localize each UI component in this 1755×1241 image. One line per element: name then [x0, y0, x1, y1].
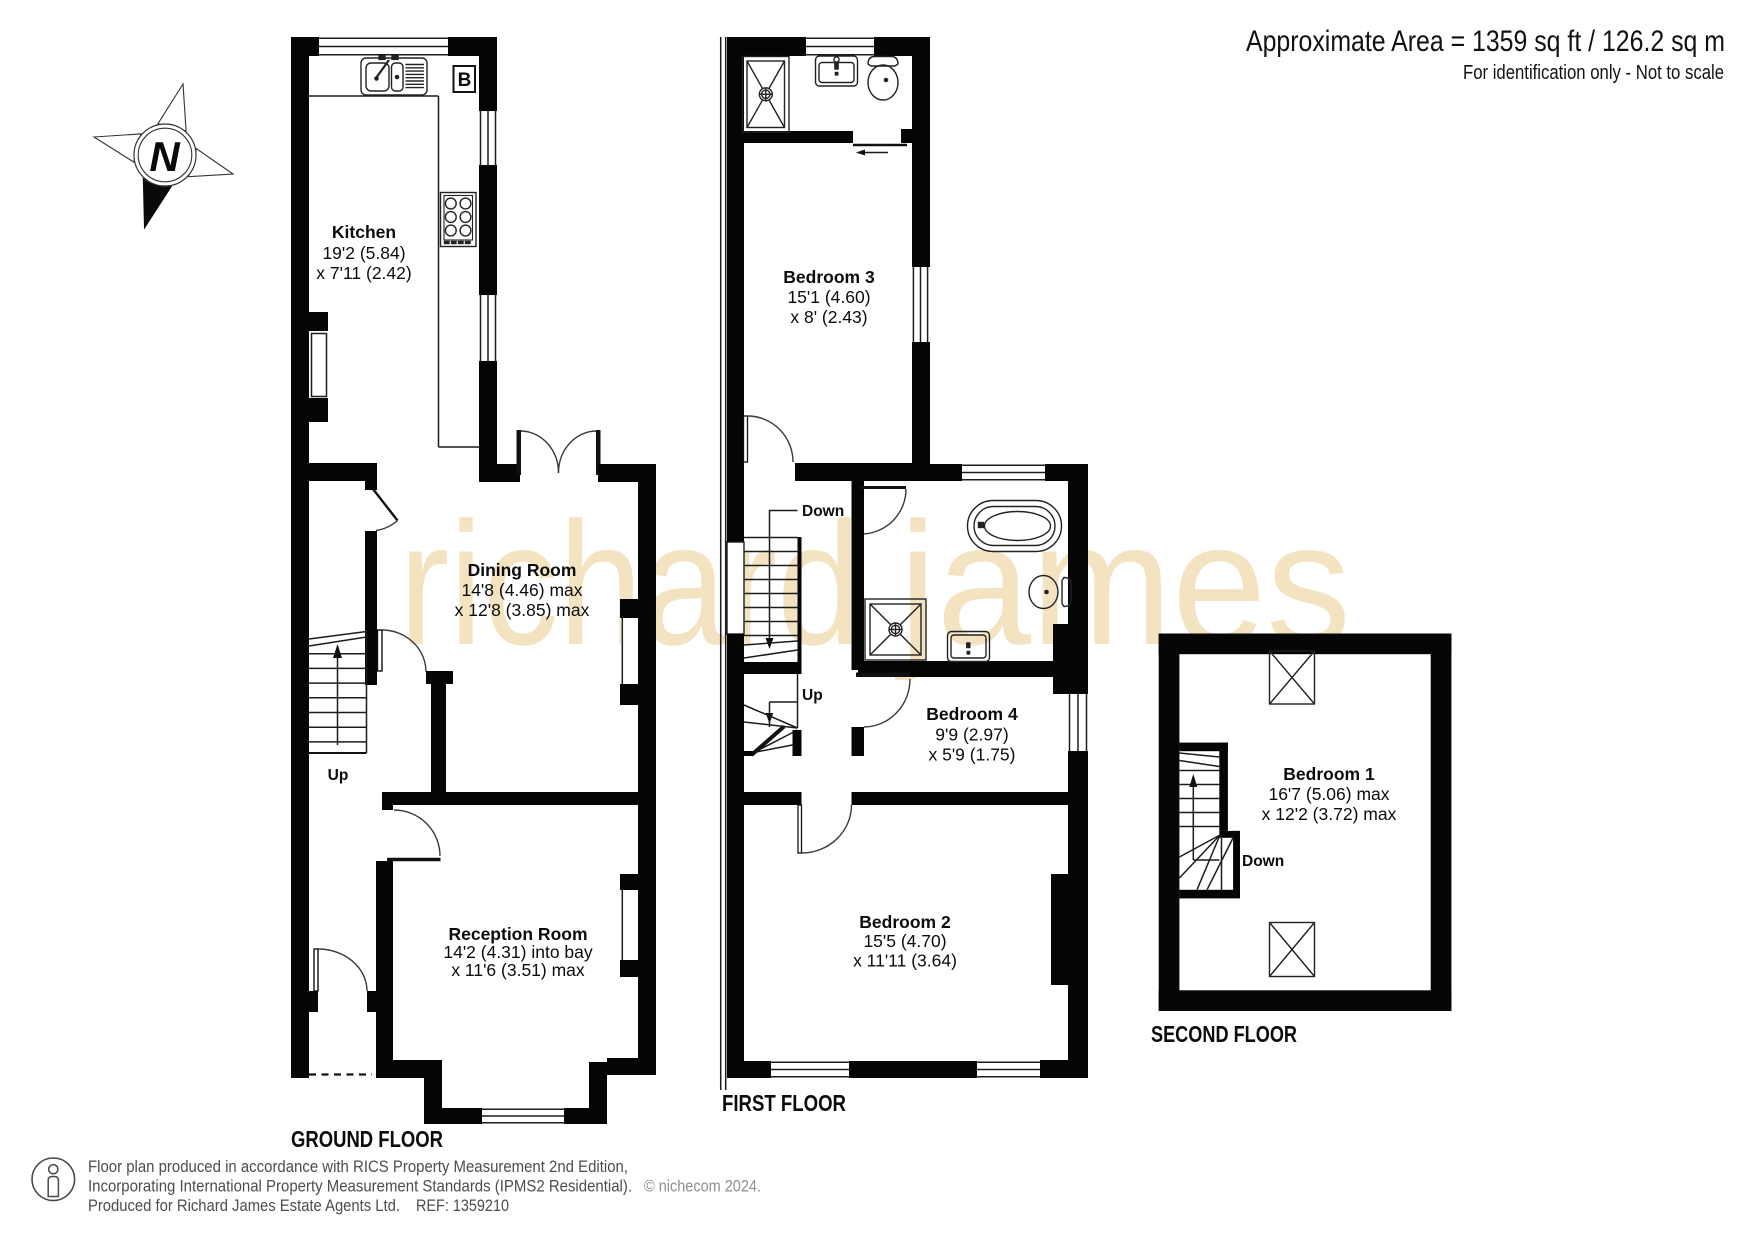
svg-text:15'1 (4.60): 15'1 (4.60) — [787, 287, 870, 307]
svg-text:Bedroom 4: Bedroom 4 — [926, 704, 1018, 724]
svg-text:Up: Up — [328, 767, 349, 784]
svg-text:N: N — [149, 133, 181, 180]
svg-text:Bedroom 3: Bedroom 3 — [783, 267, 875, 287]
svg-text:Reception Room: Reception Room — [448, 924, 587, 944]
svg-text:Kitchen: Kitchen — [332, 222, 396, 242]
svg-text:Dining Room: Dining Room — [468, 560, 577, 580]
svg-text:9'9 (2.97): 9'9 (2.97) — [935, 725, 1008, 745]
svg-text:x 5'9 (1.75): x 5'9 (1.75) — [929, 745, 1016, 765]
svg-text:15'5 (4.70): 15'5 (4.70) — [863, 931, 946, 951]
svg-text:Produced for Richard James Est: Produced for Richard James Estate Agents… — [88, 1196, 400, 1215]
svg-text:Bedroom 2: Bedroom 2 — [859, 912, 951, 932]
svg-text:© nichecom 2024.: © nichecom 2024. — [644, 1177, 761, 1196]
svg-text:14'2 (4.31) into bay: 14'2 (4.31) into bay — [443, 942, 593, 962]
svg-text:x 7'11 (2.42): x 7'11 (2.42) — [316, 263, 411, 283]
svg-text:SECOND FLOOR: SECOND FLOOR — [1151, 1021, 1297, 1047]
svg-text:Bedroom 1: Bedroom 1 — [1283, 764, 1375, 784]
svg-text:For identification only - Not: For identification only - Not to scale — [1463, 62, 1724, 84]
svg-text:x 11'11 (3.64): x 11'11 (3.64) — [853, 951, 957, 971]
svg-text:Floor plan produced in accorda: Floor plan produced in accordance with R… — [88, 1157, 628, 1176]
svg-text:B: B — [458, 70, 472, 91]
svg-text:Down: Down — [1242, 853, 1284, 870]
svg-text:Down: Down — [802, 503, 844, 520]
svg-text:x 12'8 (3.85) max: x 12'8 (3.85) max — [455, 600, 590, 620]
svg-text:Incorporating International Pr: Incorporating International Property Mea… — [88, 1177, 632, 1196]
svg-text:14'8 (4.46) max: 14'8 (4.46) max — [461, 580, 582, 600]
svg-text:GROUND FLOOR: GROUND FLOOR — [291, 1126, 443, 1152]
svg-text:16'7 (5.06) max: 16'7 (5.06) max — [1268, 784, 1389, 804]
svg-text:Up: Up — [802, 687, 823, 704]
svg-text:REF: 1359210: REF: 1359210 — [416, 1196, 509, 1215]
svg-text:x 11'6 (3.51) max: x 11'6 (3.51) max — [451, 960, 585, 980]
svg-text:x 8' (2.43): x 8' (2.43) — [790, 307, 867, 327]
svg-text:19'2 (5.84): 19'2 (5.84) — [322, 243, 405, 263]
svg-text:x 12'2 (3.72) max: x 12'2 (3.72) max — [1262, 804, 1397, 824]
svg-text:Approximate Area = 1359 sq ft: Approximate Area = 1359 sq ft / 126.2 sq… — [1246, 25, 1725, 58]
svg-text:FIRST FLOOR: FIRST FLOOR — [722, 1090, 846, 1116]
